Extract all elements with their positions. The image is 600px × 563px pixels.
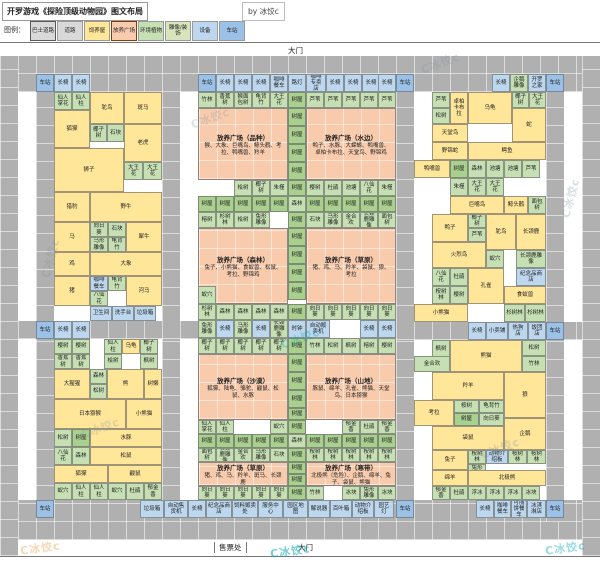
- environment-cell: 池塘: [342, 180, 360, 196]
- environment-cell: 仙人柱: [72, 483, 90, 500]
- environment-cell: 树屋: [306, 434, 324, 448]
- environment-cell: 芦苇: [522, 160, 540, 178]
- environment-cell: 向日葵: [378, 304, 396, 320]
- environment-cell: 仙人柱: [72, 92, 90, 110]
- equipment-cell: 长椅: [188, 500, 206, 518]
- environment-cell: 朱槿: [270, 180, 288, 196]
- environment-cell: 森林: [90, 369, 107, 384]
- environment-cell: 香蕉树: [54, 354, 72, 369]
- environment-cell: 冰块: [522, 486, 540, 500]
- environment-cell: 马形雕像: [90, 237, 108, 252]
- animal-house-cell: 孔雀: [468, 268, 504, 304]
- equipment-cell: 冰淇淋店: [527, 500, 546, 518]
- equipment-cell: 长椅: [234, 74, 252, 92]
- equipment-cell: 长椅: [72, 321, 90, 339]
- environment-cell: 树屋: [270, 434, 288, 448]
- environment-cell: 蚁穴: [54, 483, 72, 500]
- equipment-cell: 解说器: [308, 500, 330, 518]
- free-range-plaza: 放养广场（水边）鸭子、水豚、大蝾螈、鸭嘴兽、卓柏卡布拉、天堂鸟、野锦鸡: [306, 108, 396, 180]
- environment-cell: 椰子树: [252, 338, 270, 354]
- author-credit: by 冰饺c: [242, 2, 285, 21]
- environment-cell: 椰子树: [252, 180, 270, 196]
- road: [0, 56, 18, 556]
- environment-cell: 向日葵: [306, 304, 324, 320]
- animal-house-cell: 袋鼠: [432, 426, 504, 450]
- environment-cell: 桉树: [454, 400, 479, 413]
- environment-cell: 蚁穴: [270, 420, 288, 434]
- environment-cell: 桉树林: [378, 448, 396, 462]
- environment-cell: 龟背竹: [108, 276, 126, 291]
- environment-cell: 长颈鹿雕像: [516, 250, 546, 268]
- equipment-cell: 长椅: [252, 320, 270, 338]
- environment-cell: 金合欢: [342, 212, 360, 228]
- environment-cell: 向日葵: [270, 486, 288, 500]
- environment-cell: 榕树: [198, 212, 216, 228]
- animal-house-cell: 食蚁兽: [504, 286, 546, 304]
- environment-cell: 椰子树: [198, 338, 216, 354]
- environment-cell: 樱树: [378, 338, 396, 354]
- environment-cell: 仙人掌花: [54, 92, 72, 110]
- plaza-title: 放养广场（草原）: [325, 254, 377, 264]
- environment-cell: 松树: [54, 429, 72, 447]
- environment-cell: 芦苇: [342, 92, 360, 108]
- animal-house-cell: 乌龟: [468, 92, 512, 124]
- free-range-plaza: 放养广场（品种）猴、大象、巨嘴鸟、鲸头鹳、考拉、鸭嘴兽、羚羊: [198, 108, 288, 180]
- environment-cell: 面包树: [198, 448, 216, 462]
- top-gate-band: 大门: [0, 42, 600, 57]
- environment-cell: 树屋: [378, 196, 396, 212]
- environment-cell: 金合欢: [234, 448, 252, 462]
- environment-cell: 树屋: [360, 196, 378, 212]
- equipment-cell: 动物介绍板: [352, 500, 374, 518]
- animal-house-cell: 水豚: [90, 429, 162, 447]
- free-range-plaza: 放养广场（草原）猪、鸡、马、羚羊、斑马、长颈鹿: [198, 462, 288, 486]
- plaza-title: 放养广场（水边）: [325, 132, 377, 142]
- legend-label: 图例：: [4, 25, 25, 35]
- station-cell: 车站: [546, 500, 564, 518]
- road: [36, 92, 54, 522]
- top-gate-label: 大门: [288, 45, 303, 56]
- animal-house-cell: 鸭嘴兽: [414, 160, 450, 178]
- equipment-cell: 热狗店: [508, 322, 528, 340]
- environment-cell: 池塘: [486, 160, 504, 178]
- equipment-cell: 长椅: [216, 74, 234, 92]
- environment-cell: 树屋: [324, 196, 342, 212]
- equipment-cell: 自动贩卖机: [306, 320, 330, 338]
- equipment-cell: 长椅: [492, 74, 510, 92]
- environment-cell: 杉树林: [525, 304, 546, 322]
- environment-cell: 椰子树: [270, 338, 288, 354]
- environment-cell: 大王花: [486, 178, 504, 196]
- environment-cell: 树屋: [288, 162, 306, 180]
- free-range-plaza: 放养广场（沙漠）狐獴、陆龟、骆驼、鼹鼠、松鼠、水豚: [198, 354, 288, 420]
- animal-house-cell: 巨嘴鸟: [450, 196, 504, 214]
- equipment-cell: 路灯: [288, 74, 306, 92]
- animal-house-cell: 鲸头鹳: [504, 196, 528, 214]
- environment-cell: 树屋: [234, 196, 252, 212]
- environment-cell: 芦苇: [468, 228, 486, 242]
- animal-house-cell: 羚羊: [432, 372, 504, 400]
- environment-cell: 枫树: [342, 338, 360, 354]
- environment-cell: 大王花: [270, 92, 288, 108]
- equipment-cell: 百叶箱: [330, 500, 352, 518]
- environment-cell: 树屋: [288, 486, 306, 500]
- environment-cell: 树屋: [216, 434, 234, 448]
- environment-cell: 猴面包树: [234, 92, 252, 108]
- animal-house-cell: 熊猫: [450, 340, 522, 372]
- equipment-cell: 纪念品商店: [516, 268, 546, 286]
- equipment-cell: 长椅: [344, 74, 362, 92]
- animal-house-cell: 天堂鸟: [432, 124, 468, 142]
- environment-cell: 兔形雕像: [252, 212, 270, 228]
- environment-cell: 仙人掌花: [198, 420, 216, 434]
- plaza-animal-list: 猴、大象、巨嘴鸟、鲸头鹳、考拉、鸭嘴兽、羚羊: [202, 143, 284, 157]
- equipment-cell: 时钟: [288, 320, 306, 338]
- environment-cell: 长颈鹿雕像: [270, 320, 288, 338]
- animal-house-cell: 河马: [126, 276, 162, 306]
- animal-house-cell: 树懒: [144, 369, 162, 399]
- legend-chip: 放养广场: [111, 21, 137, 41]
- animal-house-cell: 企鹅: [504, 418, 546, 450]
- equipment-cell: 洗手台: [112, 306, 134, 321]
- road: [396, 92, 414, 522]
- environment-cell: 森林: [72, 447, 90, 465]
- environment-cell: 桉树林: [324, 448, 342, 462]
- plaza-animal-list: 北极熊（危险）、企鹅、绵羊、兔子、袋鼠、熊猫: [310, 473, 392, 486]
- environment-cell: 树屋: [288, 354, 306, 372]
- road: [546, 92, 564, 522]
- environment-cell: 树屋: [288, 304, 306, 320]
- environment-cell: 椰子树: [216, 338, 234, 354]
- environment-cell: 马形雕像: [324, 212, 342, 228]
- environment-cell: 树屋: [288, 180, 306, 196]
- environment-cell: 浮冰: [468, 486, 486, 500]
- environment-cell: 香蕉树: [216, 92, 234, 108]
- station-cell: 车站: [546, 74, 564, 92]
- environment-cell: 长颈鹿雕像: [360, 212, 378, 228]
- equipment-cell: 咖啡餐车: [90, 276, 108, 291]
- equipment-cell: 咖啡餐车: [270, 74, 288, 92]
- environment-cell: 树屋: [342, 196, 360, 212]
- legend-chip: 道路: [57, 21, 83, 41]
- equipment-cell: 动物介绍板: [486, 450, 508, 464]
- environment-cell: 芦苇: [360, 92, 378, 108]
- environment-cell: 郁金香: [342, 420, 360, 434]
- animal-house-cell: 狮子: [54, 148, 124, 192]
- environment-cell: 龟背竹: [252, 92, 270, 108]
- animal-house-cell: 乌龟: [122, 339, 140, 354]
- environment-cell: 树屋: [288, 144, 306, 162]
- environment-cell: 森林: [270, 304, 288, 320]
- environment-cell: 桧树: [234, 212, 252, 228]
- environment-cell: 向日葵: [360, 304, 378, 320]
- animal-house-cell: 长颈鹿: [516, 214, 546, 250]
- animal-house-cell: 绵羊: [432, 470, 468, 486]
- station-cell: 车站: [36, 74, 54, 92]
- environment-cell: 冰块: [342, 486, 360, 500]
- environment-cell: 榕树: [360, 338, 378, 354]
- animal-house-cell: 鸡: [54, 252, 90, 276]
- environment-cell: 竹林: [306, 486, 324, 500]
- road: [582, 56, 600, 556]
- zoo-layout-diagram: 开罗游戏《探险顶级动物园》图文布局 by 冰饺c 图例： 巴士道路道路饲养屋放养…: [0, 0, 600, 563]
- station-cell: 车站: [198, 74, 216, 92]
- environment-cell: 向日葵: [234, 486, 252, 500]
- plaza-title: 放养广场（品种）: [217, 132, 269, 142]
- station-cell: 车站: [546, 322, 564, 340]
- free-range-plaza: 放养广场（草原）猪、鸡、马、羚羊、袋鼠、狼、考拉: [306, 228, 396, 304]
- equipment-cell: 卫生间: [90, 306, 112, 321]
- environment-cell: 松树: [522, 340, 546, 356]
- environment-cell: 郁金香: [432, 486, 450, 500]
- animal-house-cell: 熊: [107, 369, 144, 399]
- free-range-plaza: 放养广场（山地）豚鼠、绵羊、孔雀、熊猫、天堂鸟、日本猕猴: [306, 354, 396, 420]
- environment-cell: 杜鹃: [360, 420, 378, 434]
- plaza-title: 放养广场（森林）: [217, 254, 269, 264]
- plaza-animal-list: 豚鼠、绵羊、孔雀、熊猫、天堂鸟、日本猕猴: [310, 386, 392, 400]
- environment-cell: 椰子树: [140, 339, 158, 354]
- equipment-cell: 长椅: [54, 74, 72, 92]
- environment-cell: 杜鹃: [450, 486, 468, 500]
- equipment-cell: 长椅: [468, 322, 486, 340]
- equipment-cell: 长椅: [378, 320, 396, 338]
- equipment-cell: 长椅: [252, 74, 270, 92]
- environment-cell: 树屋: [198, 196, 216, 212]
- environment-cell: 树屋: [324, 434, 342, 448]
- environment-cell: 树屋: [288, 264, 306, 282]
- environment-cell: 仙人柱: [104, 339, 122, 354]
- environment-cell: 金合欢: [414, 356, 450, 372]
- environment-cell: 森林: [216, 304, 234, 320]
- environment-cell: 森林: [288, 434, 306, 448]
- environment-cell: 树屋: [288, 282, 306, 300]
- environment-cell: 樱树: [54, 339, 72, 354]
- environment-cell: 石块: [108, 222, 126, 237]
- environment-cell: 树屋: [198, 434, 216, 448]
- environment-cell: 树屋: [216, 196, 234, 212]
- environment-cell: 芦苇: [432, 92, 450, 108]
- environment-cell: 杜鹃: [126, 483, 144, 500]
- environment-cell: 树屋: [306, 196, 324, 212]
- environment-cell: 龟背竹: [108, 237, 126, 252]
- environment-cell: 兔形雕像: [198, 320, 216, 338]
- environment-cell: 大王花: [529, 92, 546, 108]
- environment-cell: 向日葵: [324, 304, 342, 320]
- environment-cell: 朱槿: [378, 180, 396, 196]
- environment-cell: 森林: [468, 160, 486, 178]
- animal-house-cell: 考拉: [414, 400, 454, 426]
- environment-cell: 杜鹃: [450, 268, 468, 286]
- animal-house-cell: 鸭子: [432, 214, 468, 242]
- animal-house-cell: 鸵鸟: [486, 214, 516, 250]
- free-range-plaza: 放养广场（寒带）北极熊（危险）、企鹅、绵羊、兔子、袋鼠、熊猫: [306, 462, 396, 486]
- animal-house-cell: 斑马: [124, 92, 162, 124]
- equipment-cell: 咖啡餐车: [494, 500, 511, 518]
- environment-cell: 树屋: [288, 462, 306, 474]
- environment-cell: 桧树: [104, 354, 122, 369]
- animal-house-cell: 野牛: [90, 192, 162, 222]
- environment-cell: 杉树林: [198, 304, 216, 320]
- environment-cell: 向日葵: [342, 304, 360, 320]
- equipment-cell: 园艺灯: [374, 500, 394, 518]
- environment-cell: 椰子树: [512, 92, 529, 108]
- environment-cell: 石块: [270, 448, 288, 462]
- legend-chip: 巴士道路: [30, 21, 56, 41]
- environment-cell: 桉树林: [527, 450, 546, 464]
- environment-cell: 八仙花: [360, 180, 378, 196]
- environment-cell: 桉树林: [508, 450, 527, 464]
- station-cell: 车站: [396, 500, 414, 518]
- road: [0, 522, 600, 540]
- environment-cell: 杉树林: [504, 304, 525, 322]
- animal-house-cell: 火烈鸟: [432, 242, 486, 268]
- equipment-cell: 长椅: [54, 321, 72, 339]
- animal-house-cell: 犀牛: [126, 222, 162, 252]
- environment-cell: 大王花: [143, 162, 162, 180]
- animal-house-cell: 日本猕猴: [54, 399, 126, 429]
- environment-cell: 蚁穴: [486, 250, 504, 268]
- environment-cell: 树屋: [288, 212, 306, 228]
- environment-cell: 浮冰: [504, 486, 522, 500]
- environment-cell: 杜鹃: [324, 180, 342, 196]
- animal-house-cell: 大猩猩: [54, 369, 90, 399]
- equipment-cell: 服务中心: [258, 500, 283, 518]
- equipment-cell: 垃圾箱: [140, 500, 164, 518]
- environment-cell: 郁金香: [144, 483, 162, 500]
- equipment-cell: 长椅: [378, 74, 396, 92]
- environment-cell: 树屋: [288, 448, 306, 462]
- environment-cell: 企鹅雕像: [510, 74, 528, 92]
- environment-cell: 松树: [324, 338, 342, 354]
- environment-cell: 樱树: [450, 286, 468, 304]
- station-cell: 车站: [36, 500, 54, 518]
- station-cell: 车站: [36, 321, 54, 339]
- environment-cell: 樱树: [306, 180, 324, 196]
- plaza-title: 放养广场（山地）: [325, 375, 377, 385]
- environment-cell: 向日葵: [216, 486, 234, 500]
- plaza-animal-list: 鸭子、水豚、大蝾螈、鸭嘴兽、卓柏卡布拉、天堂鸟、野锦鸡: [310, 143, 392, 157]
- environment-cell: 蚁穴: [198, 286, 216, 304]
- equipment-cell: 小卖铺: [486, 322, 508, 340]
- environment-cell: 八仙花: [90, 291, 108, 306]
- equipment-cell: 垃圾箱: [134, 306, 156, 321]
- environment-cell: 桧树: [234, 180, 252, 196]
- animal-house-cell: 猎豹: [54, 192, 90, 222]
- animal-house-cell: 小熊猫: [414, 304, 468, 322]
- environment-cell: 树屋: [252, 434, 270, 448]
- environment-cell: 树屋: [288, 474, 306, 486]
- environment-cell: 树屋: [454, 413, 479, 426]
- environment-cell: 森林: [252, 304, 270, 320]
- equipment-cell: 长椅: [360, 320, 378, 338]
- road: [162, 92, 180, 522]
- animal-house-cell: 兔子: [432, 450, 468, 470]
- environment-cell: 兔形雕像: [360, 486, 378, 500]
- environment-cell: 朱槿: [450, 178, 468, 196]
- equipment-cell: 长椅: [476, 500, 494, 518]
- environment-cell: 树屋: [288, 228, 306, 246]
- environment-cell: 石块: [107, 124, 124, 142]
- equipment-cell: 可丽饼餐车: [511, 500, 527, 518]
- equipment-cell: 饲料贩卖处: [232, 500, 258, 518]
- environment-cell: 树屋: [288, 246, 306, 264]
- plaza-animal-list: 猪、鸡、马、羚羊、斑马、长颈鹿: [202, 473, 284, 486]
- road: [0, 56, 600, 74]
- environment-cell: 大王花: [468, 178, 486, 196]
- ticket-office-label: 售票处: [214, 542, 247, 553]
- environment-cell: 面包树: [378, 212, 396, 228]
- bottom-gate-band: 售票处 大门: [0, 541, 600, 557]
- environment-cell: 树屋: [72, 429, 90, 447]
- animal-house-cell: 鳄鱼: [468, 142, 546, 160]
- legend-chip: 雕像/装饰: [165, 21, 191, 41]
- animal-house-cell: 蛇: [512, 108, 546, 142]
- environment-cell: 竹林: [198, 92, 216, 108]
- station-cell: 车站: [396, 74, 414, 92]
- environment-cell: 向日葵: [90, 222, 108, 237]
- environment-cell: 向日葵: [198, 486, 216, 500]
- environment-cell: 桉树林: [342, 448, 360, 462]
- environment-cell: 森林: [234, 304, 252, 320]
- environment-cell: 树屋: [342, 434, 360, 448]
- plaza-title: 放养广场（沙漠）: [217, 375, 269, 385]
- environment-cell: 树屋: [234, 434, 252, 448]
- environment-cell: 树屋: [270, 196, 288, 212]
- environment-cell: 大王花: [124, 162, 143, 180]
- environment-cell: 树屋: [288, 372, 306, 390]
- equipment-cell: 开罗之家: [528, 74, 546, 92]
- legend-chip: 饲养屋: [84, 21, 110, 41]
- plaza-animal-list: 兔子、小熊猫、食蚁兽、松鼠、考拉、野锦鸡: [202, 265, 284, 279]
- equipment-cell: 自动售货机: [164, 500, 188, 518]
- equipment-cell: 园区地图: [283, 500, 308, 518]
- animal-house-cell: 松鼠: [90, 447, 162, 465]
- page-title: 开罗游戏《探险顶级动物园》图文布局: [2, 2, 148, 21]
- environment-cell: 松树: [90, 384, 107, 399]
- animal-house-cell: 狐獴: [54, 110, 90, 148]
- environment-cell: 杉树林: [216, 212, 234, 228]
- plaza-animal-list: 猪、鸡、马、羚羊、袋鼠、狼、考拉: [310, 265, 392, 279]
- animal-house-cell: 鼹鼠: [108, 465, 162, 483]
- environment-cell: 八仙花: [432, 268, 450, 286]
- plaza-title: 放养广场（草原）: [217, 462, 269, 472]
- environment-cell: 森林: [288, 196, 306, 212]
- environment-cell: 面包树: [528, 196, 546, 214]
- environment-cell: 浮冰: [486, 486, 504, 500]
- equipment-cell: 咖啡专卖店: [306, 74, 326, 92]
- animal-house-cell: 卓柏卡布拉: [450, 92, 468, 124]
- environment-cell: 松树: [432, 108, 450, 124]
- legend-chip: 设备: [192, 21, 218, 41]
- environment-cell: 向日葵: [479, 413, 504, 426]
- environment-cell: 马形雕像: [252, 448, 270, 462]
- legend-chip: 车站: [219, 21, 245, 41]
- environment-cell: 芦苇: [378, 92, 396, 108]
- equipment-cell: 饭团店: [528, 322, 546, 340]
- animal-house-cell: 狐獴: [54, 465, 108, 483]
- environment-cell: 树屋: [378, 434, 396, 448]
- environment-cell: 芦苇: [324, 92, 342, 108]
- environment-cell: 向日葵: [252, 486, 270, 500]
- environment-cell: 香蕉树: [72, 354, 90, 369]
- environment-cell: 桉树林: [306, 448, 324, 462]
- animal-house-cell: 老虎: [124, 124, 162, 162]
- environment-cell: 枫树: [140, 354, 158, 369]
- environment-cell: 树屋: [288, 108, 306, 126]
- environment-cell: 蚁穴: [108, 483, 126, 500]
- environment-cell: 芦苇: [306, 92, 324, 108]
- environment-cell: 八仙花: [54, 447, 72, 465]
